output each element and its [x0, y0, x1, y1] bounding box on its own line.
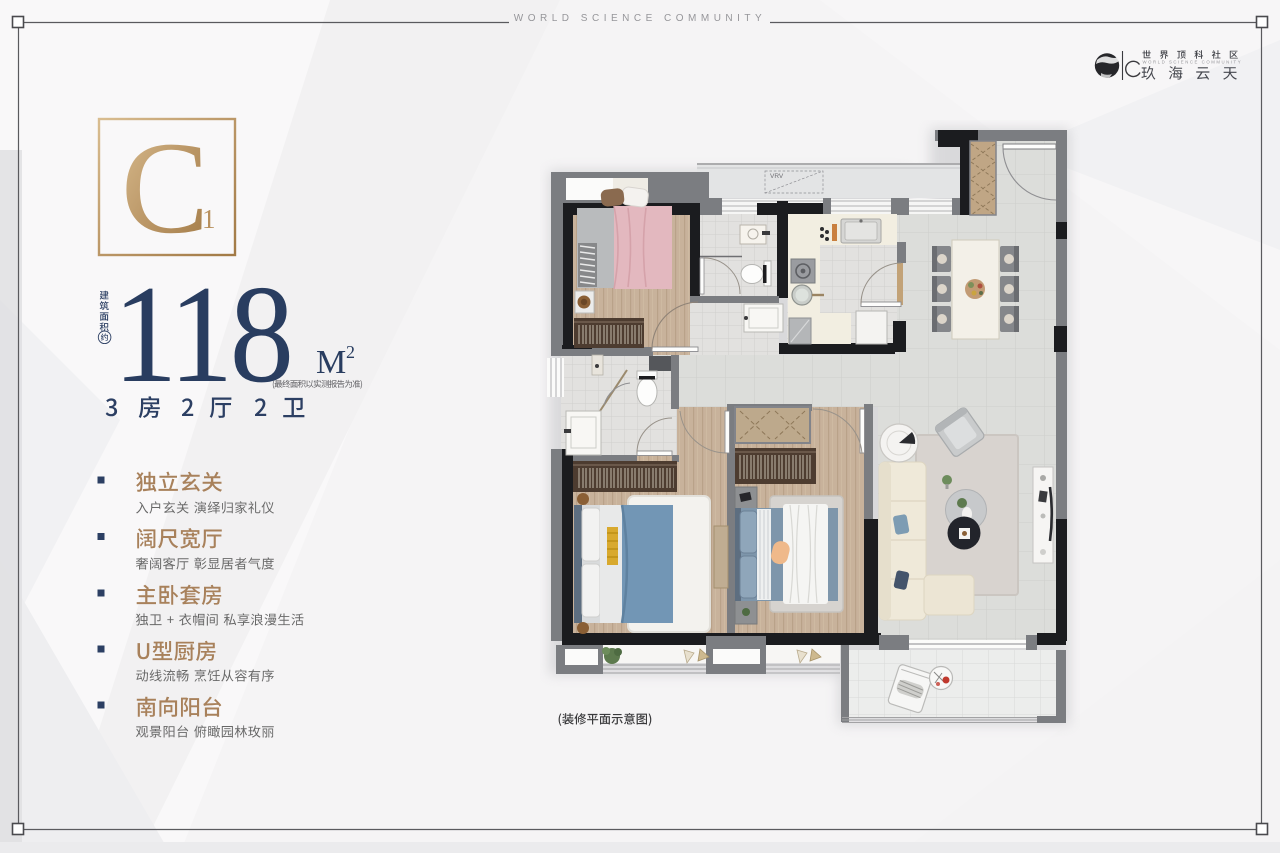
svg-text:2: 2 — [346, 342, 355, 362]
svg-text:M: M — [316, 344, 346, 381]
svg-text:1: 1 — [202, 204, 216, 234]
svg-text:C: C — [121, 116, 209, 258]
svg-text:WORLD SCIENCE COMMUNITY: WORLD SCIENCE COMMUNITY — [1143, 59, 1243, 64]
svg-text:VRV: VRV — [770, 173, 784, 180]
svg-text:118: 118 — [113, 270, 290, 400]
